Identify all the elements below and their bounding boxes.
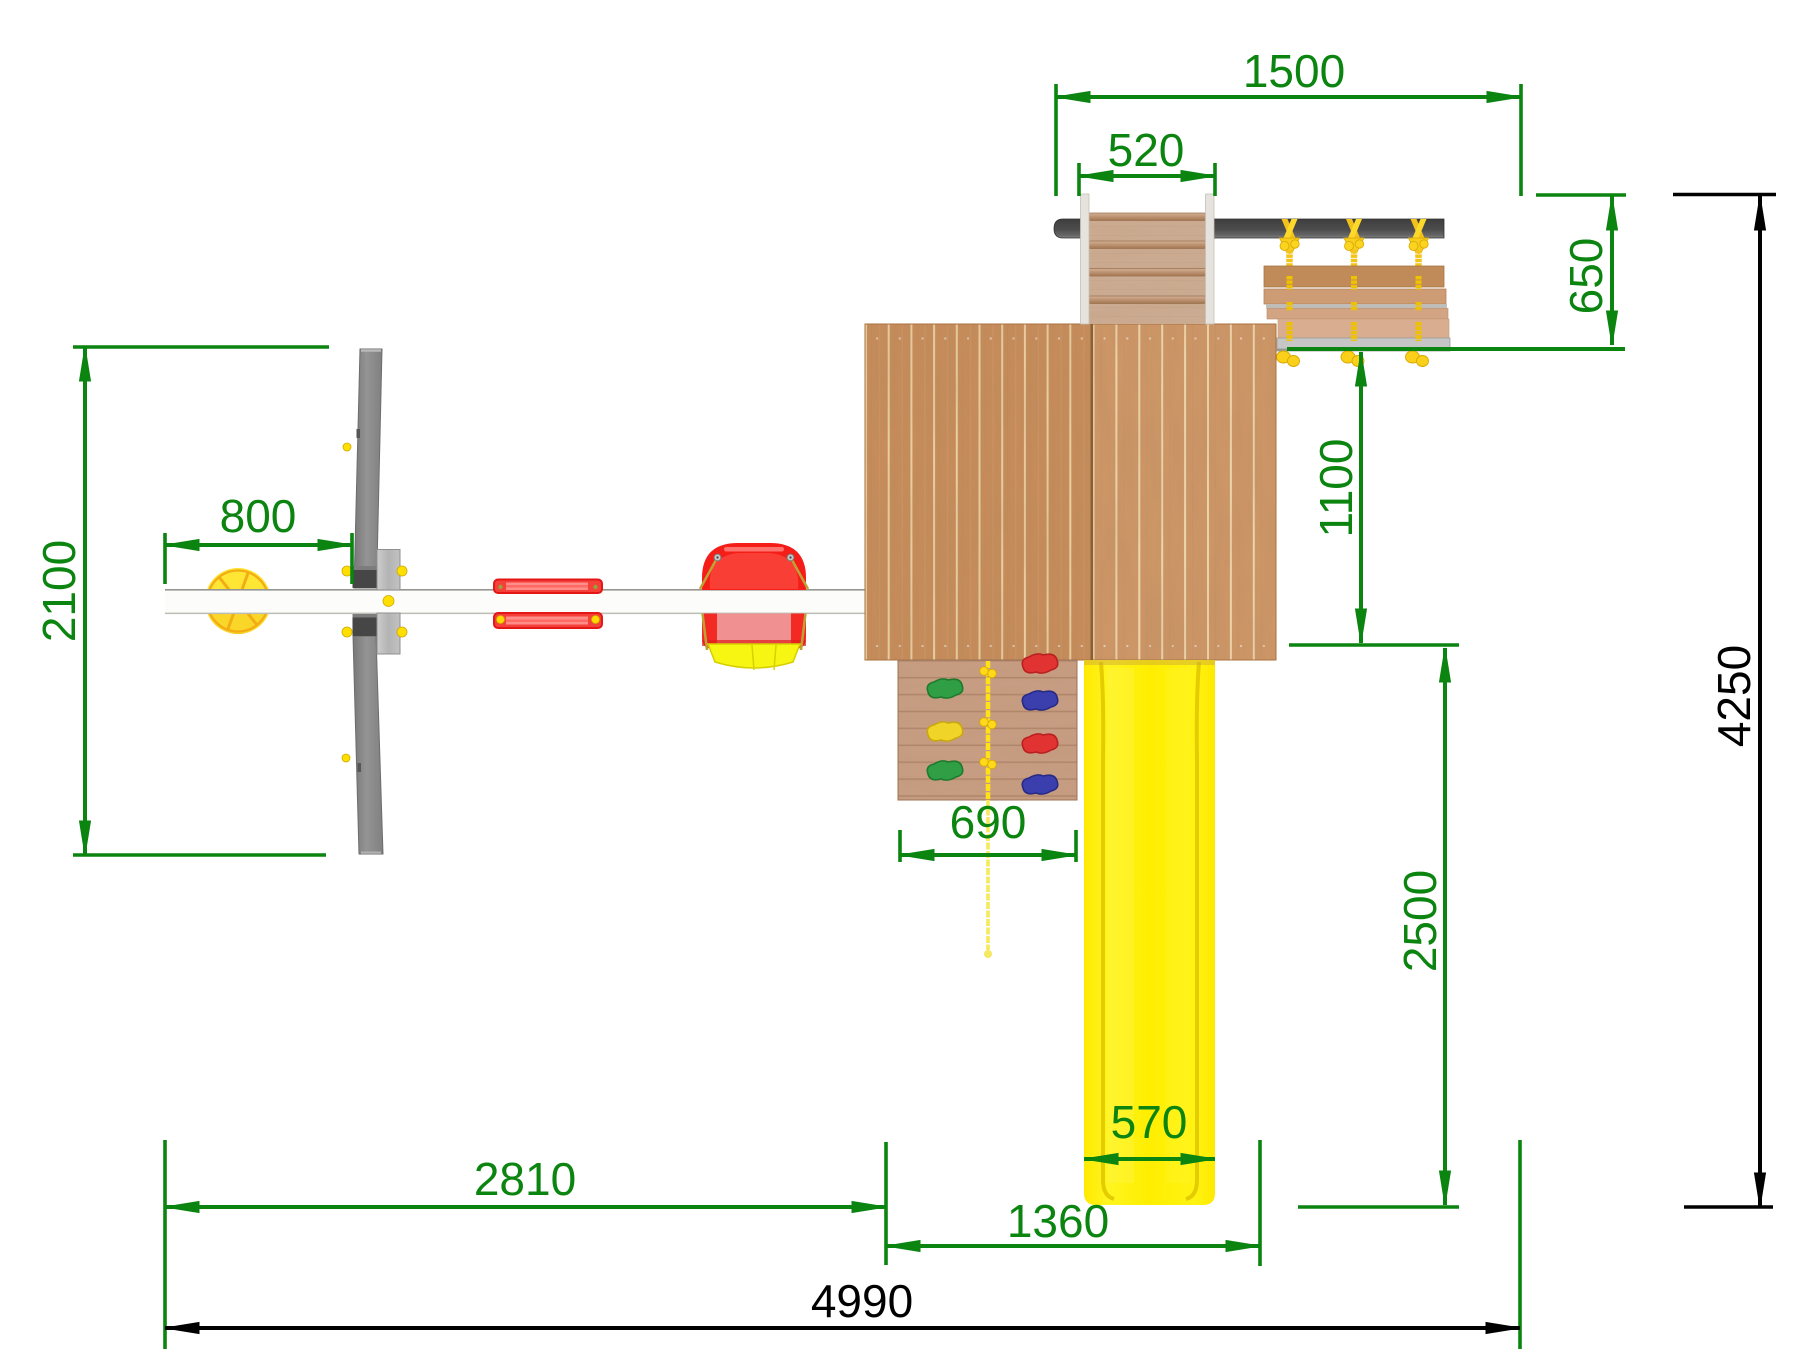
svg-text:1500: 1500 (1243, 45, 1345, 97)
svg-text:800: 800 (220, 490, 297, 542)
svg-text:1100: 1100 (1310, 439, 1362, 538)
svg-text:2810: 2810 (474, 1153, 576, 1205)
svg-text:4250: 4250 (1708, 645, 1760, 747)
svg-text:650: 650 (1560, 238, 1612, 315)
svg-text:4990: 4990 (811, 1275, 913, 1327)
svg-text:1360: 1360 (1007, 1195, 1109, 1247)
svg-text:2500: 2500 (1394, 870, 1446, 972)
svg-text:570: 570 (1111, 1096, 1188, 1148)
svg-text:520: 520 (1108, 124, 1185, 176)
svg-text:690: 690 (950, 796, 1027, 848)
svg-text:2100: 2100 (33, 540, 85, 642)
